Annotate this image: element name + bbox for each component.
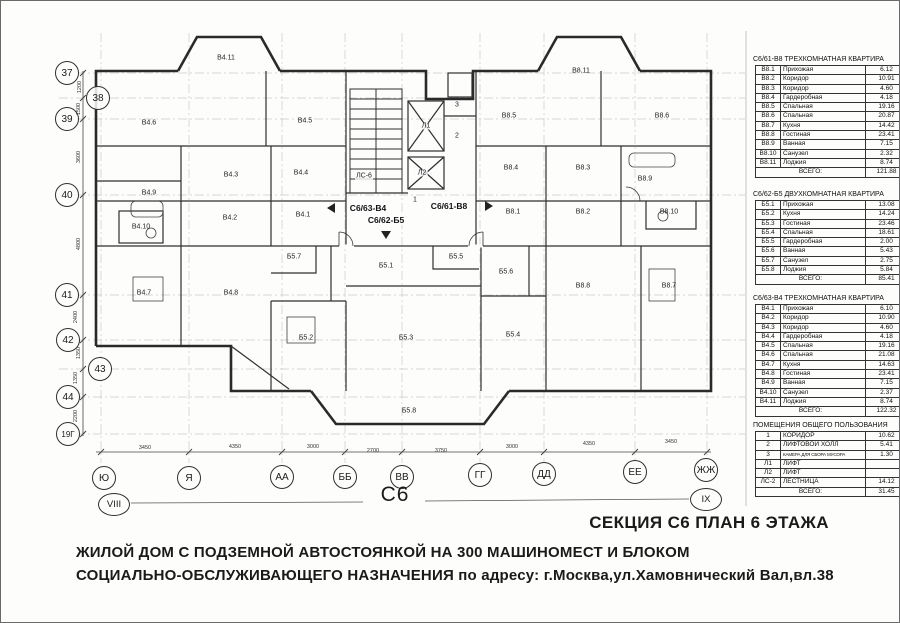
dimension-label-horizontal: 4350 — [583, 441, 595, 447]
table-row: 3КАМЕРА ДЛЯ СБОРА МУСОРА1.30 — [756, 450, 900, 459]
room-label: В8.8 — [576, 283, 590, 290]
core-label: ЛС-6 — [355, 173, 373, 180]
table-total-row: ВСЕГО:31.45 — [756, 487, 900, 496]
room-label: В4.7 — [137, 290, 151, 297]
room-area-cell: 8.74 — [866, 158, 900, 167]
room-id-cell: 3 — [756, 450, 781, 459]
room-name-cell: Гардеробная — [781, 238, 866, 247]
room-area-cell: 23.46 — [866, 219, 900, 228]
table-row: В4.6Спальная21.08 — [756, 351, 900, 360]
room-area-cell — [866, 459, 900, 468]
table-total-row: ВСЕГО:121.88 — [756, 168, 900, 177]
apartment-ref-label: С6/61-В8 — [431, 201, 467, 211]
axis-circle-roman-right: IX — [690, 488, 722, 511]
table-row: В8.2Коридор10.91 — [756, 75, 900, 84]
room-id-cell: 1 — [756, 432, 781, 441]
dimension-label-vertical: 2200 — [73, 410, 79, 422]
area-table-1: С6/62-Б5 ДВУХКОМНАТНАЯ КВАРТИРАБ5.1Прихо… — [753, 191, 899, 285]
axis-circle-left: 19Г — [56, 422, 80, 446]
room-id-cell: В8.2 — [756, 75, 781, 84]
room-name-cell: ЛЕСТНИЦА — [781, 478, 866, 487]
total-label-cell: ВСЕГО: — [756, 168, 866, 177]
area-table-grid: В8.1Прихожая6.12В8.2Коридор10.91В8.3Кори… — [755, 65, 900, 178]
table-row: В8.8Гостиная23.41 — [756, 131, 900, 140]
table-row: В4.11Лоджия8.74 — [756, 397, 900, 406]
axis-circle-bottom: Ю — [92, 466, 116, 490]
room-name-cell: Спальная — [781, 351, 866, 360]
area-table-grid: 1КОРИДОР10.622ЛИФТОВОЙ ХОЛЛ5.413КАМЕРА Д… — [755, 431, 900, 497]
axis-circle-left: 37 — [55, 61, 79, 85]
room-area-cell: 4.18 — [866, 332, 900, 341]
dimension-label-vertical: 1200 — [77, 81, 83, 93]
dimension-label-horizontal: 3000 — [307, 444, 319, 450]
room-area-cell — [866, 469, 900, 478]
room-area-cell: 6.12 — [866, 66, 900, 75]
room-label: В4.3 — [224, 172, 238, 179]
room-name-cell: Ванная — [781, 379, 866, 388]
core-label: 1 — [412, 197, 418, 204]
table-row: Б5.2Кухня14.24 — [756, 210, 900, 219]
table-row: В4.2Коридор10.90 — [756, 314, 900, 323]
room-id-cell: В8.4 — [756, 93, 781, 102]
table-row: В4.9Ванная7.15 — [756, 379, 900, 388]
room-area-cell: 7.15 — [866, 140, 900, 149]
room-id-cell: Б5.6 — [756, 247, 781, 256]
room-label: Б5.6 — [499, 269, 513, 276]
room-area-cell: 2.75 — [866, 256, 900, 265]
room-area-cell: 10.62 — [866, 432, 900, 441]
room-area-cell: 23.41 — [866, 370, 900, 379]
table-row: Б5.5Гардеробная2.00 — [756, 238, 900, 247]
dimension-label-horizontal: 4350 — [229, 444, 241, 450]
axis-circle-roman-left: VIII — [98, 493, 130, 516]
apartment-ref-label: С6/63-В4 — [350, 203, 386, 213]
axis-circle-bottom: Я — [177, 466, 201, 490]
room-id-cell: Б5.3 — [756, 219, 781, 228]
table-row: Б5.4Спальная18.61 — [756, 228, 900, 237]
room-label: В8.1 — [506, 209, 520, 216]
table-row: Б5.7Санузел2.75 — [756, 256, 900, 265]
room-id-cell: ЛС-2 — [756, 478, 781, 487]
room-name-cell: Спальная — [781, 228, 866, 237]
room-id-cell: В4.11 — [756, 397, 781, 406]
room-area-cell: 1.30 — [866, 450, 900, 459]
room-area-cell: 10.90 — [866, 314, 900, 323]
room-label: В8.9 — [638, 176, 652, 183]
total-value-cell: 31.45 — [866, 487, 900, 496]
room-label: В4.5 — [298, 118, 312, 125]
axis-circle-left: 44 — [56, 385, 80, 409]
table-row: В8.3Коридор4.60 — [756, 84, 900, 93]
table-row: Л2ЛИФТ — [756, 469, 900, 478]
room-id-cell: Б5.4 — [756, 228, 781, 237]
room-id-cell: В8.6 — [756, 112, 781, 121]
room-label: Б5.1 — [379, 263, 393, 270]
room-id-cell: В8.11 — [756, 158, 781, 167]
room-name-cell: ЛИФТОВОЙ ХОЛЛ — [781, 441, 866, 450]
core-label: Л2 — [417, 170, 428, 177]
room-label: Б5.7 — [287, 254, 301, 261]
axis-circle-bottom: АА — [270, 465, 294, 489]
dimension-label-horizontal: 3450 — [665, 439, 677, 445]
room-name-cell: Гардеробная — [781, 332, 866, 341]
room-name-cell: Кухня — [781, 210, 866, 219]
room-label: В8.10 — [660, 209, 678, 216]
room-label: В4.9 — [142, 190, 156, 197]
room-id-cell: Б5.5 — [756, 238, 781, 247]
table-row: Б5.3Гостиная23.46 — [756, 219, 900, 228]
core-label: 2 — [454, 133, 460, 140]
room-id-cell: В4.5 — [756, 342, 781, 351]
room-area-cell: 14.63 — [866, 360, 900, 369]
table-row: В4.7Кухня14.63 — [756, 360, 900, 369]
table-row: В8.7Кухня14.42 — [756, 121, 900, 130]
room-label: В4.1 — [296, 212, 310, 219]
room-id-cell: В8.8 — [756, 131, 781, 140]
dimension-label-vertical: 1350 — [76, 347, 82, 359]
area-table-title: С6/61-В8 ТРЕХКОМНАТНАЯ КВАРТИРА — [753, 56, 899, 63]
room-label: В4.11 — [217, 55, 235, 62]
room-id-cell: В4.8 — [756, 370, 781, 379]
room-name-cell: Прихожая — [781, 66, 866, 75]
area-table-3: ПОМЕЩЕНИЯ ОБЩЕГО ПОЛЬЗОВАНИЯ1КОРИДОР10.6… — [753, 422, 899, 497]
area-table-grid: В4.1Прихожая6.10В4.2Коридор10.90В4.3Кори… — [755, 304, 900, 417]
room-name-cell: Коридор — [781, 75, 866, 84]
axis-circle-bottom: ЕЕ — [623, 460, 647, 484]
axis-circle-bottom: ЖЖ — [694, 458, 718, 482]
core-label: Л1 — [421, 123, 432, 130]
table-row: ЛС-2ЛЕСТНИЦА14.12 — [756, 478, 900, 487]
room-area-cell: 4.60 — [866, 323, 900, 332]
room-area-cell: 10.91 — [866, 75, 900, 84]
room-area-cell: 14.12 — [866, 478, 900, 487]
room-name-cell: Спальная — [781, 103, 866, 112]
table-row: В4.3Коридор4.60 — [756, 323, 900, 332]
room-area-cell: 23.41 — [866, 131, 900, 140]
room-area-cell: 4.18 — [866, 93, 900, 102]
table-row: В4.5Спальная19.16 — [756, 342, 900, 351]
room-id-cell: В4.7 — [756, 360, 781, 369]
room-label: В4.2 — [223, 215, 237, 222]
room-name-cell: ЛИФТ — [781, 459, 866, 468]
room-id-cell: В8.7 — [756, 121, 781, 130]
room-area-cell: 5.41 — [866, 441, 900, 450]
floor-plan-sheet: 373839404142434419ГЮЯААББВВГГДДЕЕЖЖVIIII… — [0, 0, 900, 623]
room-name-cell: Прихожая — [781, 305, 866, 314]
room-area-cell: 2.37 — [866, 388, 900, 397]
room-id-cell: В4.9 — [756, 379, 781, 388]
room-id-cell: 2 — [756, 441, 781, 450]
room-name-cell: Коридор — [781, 323, 866, 332]
total-label-cell: ВСЕГО: — [756, 487, 866, 496]
total-value-cell: 85.41 — [866, 275, 900, 284]
room-label: Б5.4 — [506, 332, 520, 339]
room-id-cell: Б5.7 — [756, 256, 781, 265]
room-label: В8.7 — [662, 283, 676, 290]
dimension-label-horizontal: 2700 — [367, 448, 379, 454]
area-table-0: С6/61-В8 ТРЕХКОМНАТНАЯ КВАРТИРАВ8.1Прихо… — [753, 56, 899, 178]
room-name-cell: Санузел — [781, 149, 866, 158]
table-row: Б5.6Ванная5.43 — [756, 247, 900, 256]
room-area-cell: 19.16 — [866, 103, 900, 112]
room-name-cell: Лоджия — [781, 266, 866, 275]
room-area-cell: 20.87 — [866, 112, 900, 121]
room-label: Б5.5 — [449, 254, 463, 261]
table-row: В4.1Прихожая6.10 — [756, 305, 900, 314]
room-area-cell: 2.00 — [866, 238, 900, 247]
total-label-cell: ВСЕГО: — [756, 275, 866, 284]
table-row: В4.4Гардеробная4.18 — [756, 332, 900, 341]
room-id-cell: В8.9 — [756, 140, 781, 149]
area-table-title: С6/62-Б5 ДВУХКОМНАТНАЯ КВАРТИРА — [753, 191, 899, 198]
room-id-cell: В4.1 — [756, 305, 781, 314]
dimension-label-vertical: 1350 — [73, 372, 79, 384]
room-name-cell: Гардеробная — [781, 93, 866, 102]
dimension-label-horizontal: 3000 — [506, 444, 518, 450]
table-row: В8.1Прихожая6.12 — [756, 66, 900, 75]
room-label: В4.4 — [294, 170, 308, 177]
area-table-title: ПОМЕЩЕНИЯ ОБЩЕГО ПОЛЬЗОВАНИЯ — [753, 422, 899, 429]
room-area-cell: 14.42 — [866, 121, 900, 130]
room-name-cell: Коридор — [781, 84, 866, 93]
axis-circle-left: 43 — [88, 357, 112, 381]
axis-circle-bottom: ДД — [532, 462, 556, 486]
room-id-cell: В8.5 — [756, 103, 781, 112]
table-row: В4.10Санузел2.37 — [756, 388, 900, 397]
section-label: С6 — [381, 483, 410, 507]
axis-circle-left: 38 — [86, 86, 110, 110]
room-id-cell: Л2 — [756, 469, 781, 478]
room-id-cell: В4.10 — [756, 388, 781, 397]
table-row: Л1ЛИФТ — [756, 459, 900, 468]
room-label: Б5.8 — [402, 408, 416, 415]
room-name-cell: Гостиная — [781, 131, 866, 140]
table-row: В8.10Санузел2.32 — [756, 149, 900, 158]
axis-circle-left: 40 — [55, 183, 79, 207]
table-row: В8.5Спальная19.16 — [756, 103, 900, 112]
room-area-cell: 7.15 — [866, 379, 900, 388]
axis-circle-bottom: ББ — [333, 465, 357, 489]
room-name-cell: Лоджия — [781, 397, 866, 406]
room-area-cell: 19.16 — [866, 342, 900, 351]
room-label: В4.6 — [142, 120, 156, 127]
dimension-label-horizontal: 3750 — [435, 448, 447, 454]
room-id-cell: В4.4 — [756, 332, 781, 341]
table-row: Б5.1Прихожая13.08 — [756, 201, 900, 210]
room-id-cell: В8.3 — [756, 84, 781, 93]
dimension-label-vertical: 2400 — [73, 311, 79, 323]
room-id-cell: Б5.8 — [756, 266, 781, 275]
room-area-cell: 5.43 — [866, 247, 900, 256]
room-name-cell: Спальная — [781, 342, 866, 351]
room-area-cell: 18.61 — [866, 228, 900, 237]
room-area-cell: 21.08 — [866, 351, 900, 360]
room-name-cell: Ванная — [781, 247, 866, 256]
room-area-cell: 5.84 — [866, 266, 900, 275]
room-label: В8.11 — [572, 68, 590, 75]
area-table-grid: Б5.1Прихожая13.08Б5.2Кухня14.24Б5.3Гости… — [755, 200, 900, 285]
sheet-title: СЕКЦИЯ С6 ПЛАН 6 ЭТАЖА — [589, 513, 829, 533]
project-title-line1: ЖИЛОЙ ДОМ С ПОДЗЕМНОЙ АВТОСТОЯНКОЙ НА 30… — [76, 544, 690, 561]
room-id-cell: В4.2 — [756, 314, 781, 323]
room-name-cell: Коридор — [781, 314, 866, 323]
room-name-cell: КАМЕРА ДЛЯ СБОРА МУСОРА — [781, 450, 866, 459]
room-name-cell: Санузел — [781, 256, 866, 265]
dimension-label-vertical: 4800 — [76, 238, 82, 250]
apartment-ref-label: С6/62-Б5 — [368, 215, 404, 225]
total-value-cell: 122.32 — [866, 407, 900, 416]
room-id-cell: В8.10 — [756, 149, 781, 158]
room-name-cell: Спальная — [781, 112, 866, 121]
table-row: 2ЛИФТОВОЙ ХОЛЛ5.41 — [756, 441, 900, 450]
project-title-line2: СОЦИАЛЬНО-ОБСЛУЖИВАЮЩЕГО НАЗНАЧЕНИЯ по а… — [76, 567, 834, 584]
room-label: В8.2 — [576, 209, 590, 216]
table-row: В8.11Лоджия8.74 — [756, 158, 900, 167]
room-name-cell: Лоджия — [781, 158, 866, 167]
dimension-label-vertical: 3600 — [76, 151, 82, 163]
room-id-cell: В4.6 — [756, 351, 781, 360]
core-label: 3 — [454, 102, 460, 109]
room-area-cell: 4.60 — [866, 84, 900, 93]
table-row: В8.6Спальная20.87 — [756, 112, 900, 121]
area-table-2: С6/63-В4 ТРЕХКОМНАТНАЯ КВАРТИРАВ4.1Прихо… — [753, 295, 899, 417]
room-name-cell: Кухня — [781, 121, 866, 130]
axis-circle-left: 41 — [55, 283, 79, 307]
dimension-label-vertical: 1500 — [76, 103, 82, 115]
dimension-label-horizontal: 3450 — [139, 445, 151, 451]
area-table-title: С6/63-В4 ТРЕХКОМНАТНАЯ КВАРТИРА — [753, 295, 899, 302]
total-label-cell: ВСЕГО: — [756, 407, 866, 416]
table-row: 1КОРИДОР10.62 — [756, 432, 900, 441]
room-id-cell: Л1 — [756, 459, 781, 468]
room-name-cell: Прихожая — [781, 201, 866, 210]
room-area-cell: 2.32 — [866, 149, 900, 158]
room-id-cell: Б5.2 — [756, 210, 781, 219]
table-row: В4.8Гостиная23.41 — [756, 370, 900, 379]
table-row: Б5.8Лоджия5.84 — [756, 266, 900, 275]
room-id-cell: Б5.1 — [756, 201, 781, 210]
room-name-cell: Ванная — [781, 140, 866, 149]
table-row: В8.4Гардеробная4.18 — [756, 93, 900, 102]
room-name-cell: Гостиная — [781, 219, 866, 228]
room-label: Б5.3 — [399, 335, 413, 342]
table-total-row: ВСЕГО:85.41 — [756, 275, 900, 284]
room-label: В4.8 — [224, 290, 238, 297]
room-label: В8.3 — [576, 165, 590, 172]
room-label: В8.4 — [504, 165, 518, 172]
room-name-cell: ЛИФТ — [781, 469, 866, 478]
room-name-cell: КОРИДОР — [781, 432, 866, 441]
room-name-cell: Кухня — [781, 360, 866, 369]
room-area-cell: 6.10 — [866, 305, 900, 314]
room-id-cell: В4.3 — [756, 323, 781, 332]
room-name-cell: Гостиная — [781, 370, 866, 379]
table-row: В8.9Ванная7.15 — [756, 140, 900, 149]
room-area-cell: 13.08 — [866, 201, 900, 210]
room-area-cell: 8.74 — [866, 397, 900, 406]
room-label: Б5.2 — [299, 335, 313, 342]
room-name-cell: Санузел — [781, 388, 866, 397]
room-label: В4.10 — [132, 224, 150, 231]
room-label: В8.6 — [655, 113, 669, 120]
room-id-cell: В8.1 — [756, 66, 781, 75]
room-area-cell: 14.24 — [866, 210, 900, 219]
total-value-cell: 121.88 — [866, 168, 900, 177]
room-label: В8.5 — [502, 113, 516, 120]
axis-circle-bottom: ГГ — [468, 463, 492, 487]
table-total-row: ВСЕГО:122.32 — [756, 407, 900, 416]
